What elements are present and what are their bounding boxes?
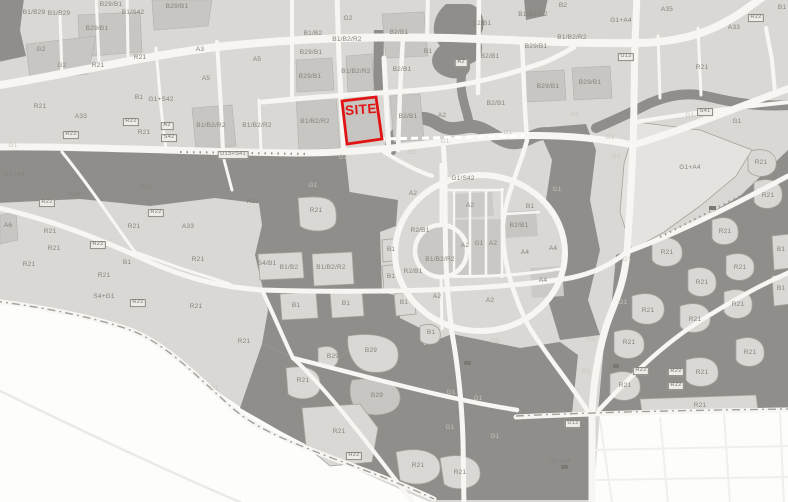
site-label: SITE	[342, 101, 381, 119]
map-canvas	[0, 0, 788, 502]
planning-map[interactable]: B1/B29B1/B29B29/B1B1/S42B29/B1B29/B1G2B1…	[0, 0, 788, 502]
